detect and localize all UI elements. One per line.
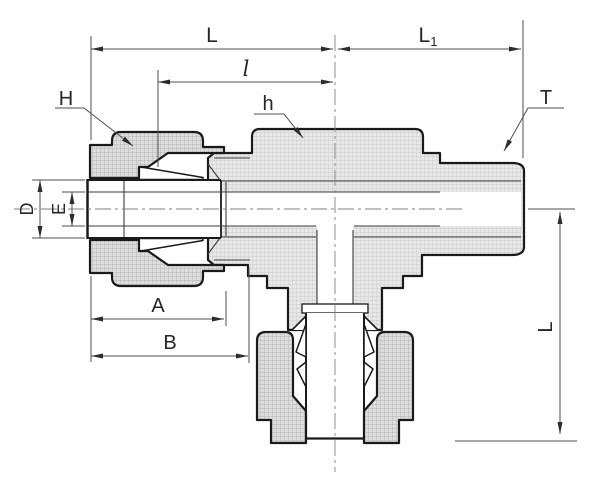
label-L-top: L — [206, 24, 218, 47]
fitting-technical-drawing: L l L1 H h T A B D E L — [0, 0, 603, 485]
label-D: D — [17, 203, 37, 216]
label-L1: L1 — [419, 24, 438, 49]
label-h: h — [262, 93, 273, 115]
label-H: H — [59, 88, 73, 110]
label-l-small: l — [243, 57, 250, 81]
body-section — [208, 129, 524, 330]
bottom-back-ferrule-right — [364, 362, 373, 387]
front-ferrule-upper — [138, 167, 203, 180]
front-ferrule-lower — [138, 239, 203, 252]
label-L-vertical: L — [535, 321, 557, 332]
leader-T — [504, 108, 564, 151]
label-E: E — [49, 203, 69, 215]
body-silhouette — [208, 129, 524, 330]
bottom-back-ferrule-left — [297, 362, 306, 387]
label-T: T — [540, 87, 552, 109]
label-B: B — [163, 332, 176, 354]
label-A: A — [151, 295, 165, 317]
drawing-canvas: L l L1 H h T A B D E L — [0, 0, 603, 485]
